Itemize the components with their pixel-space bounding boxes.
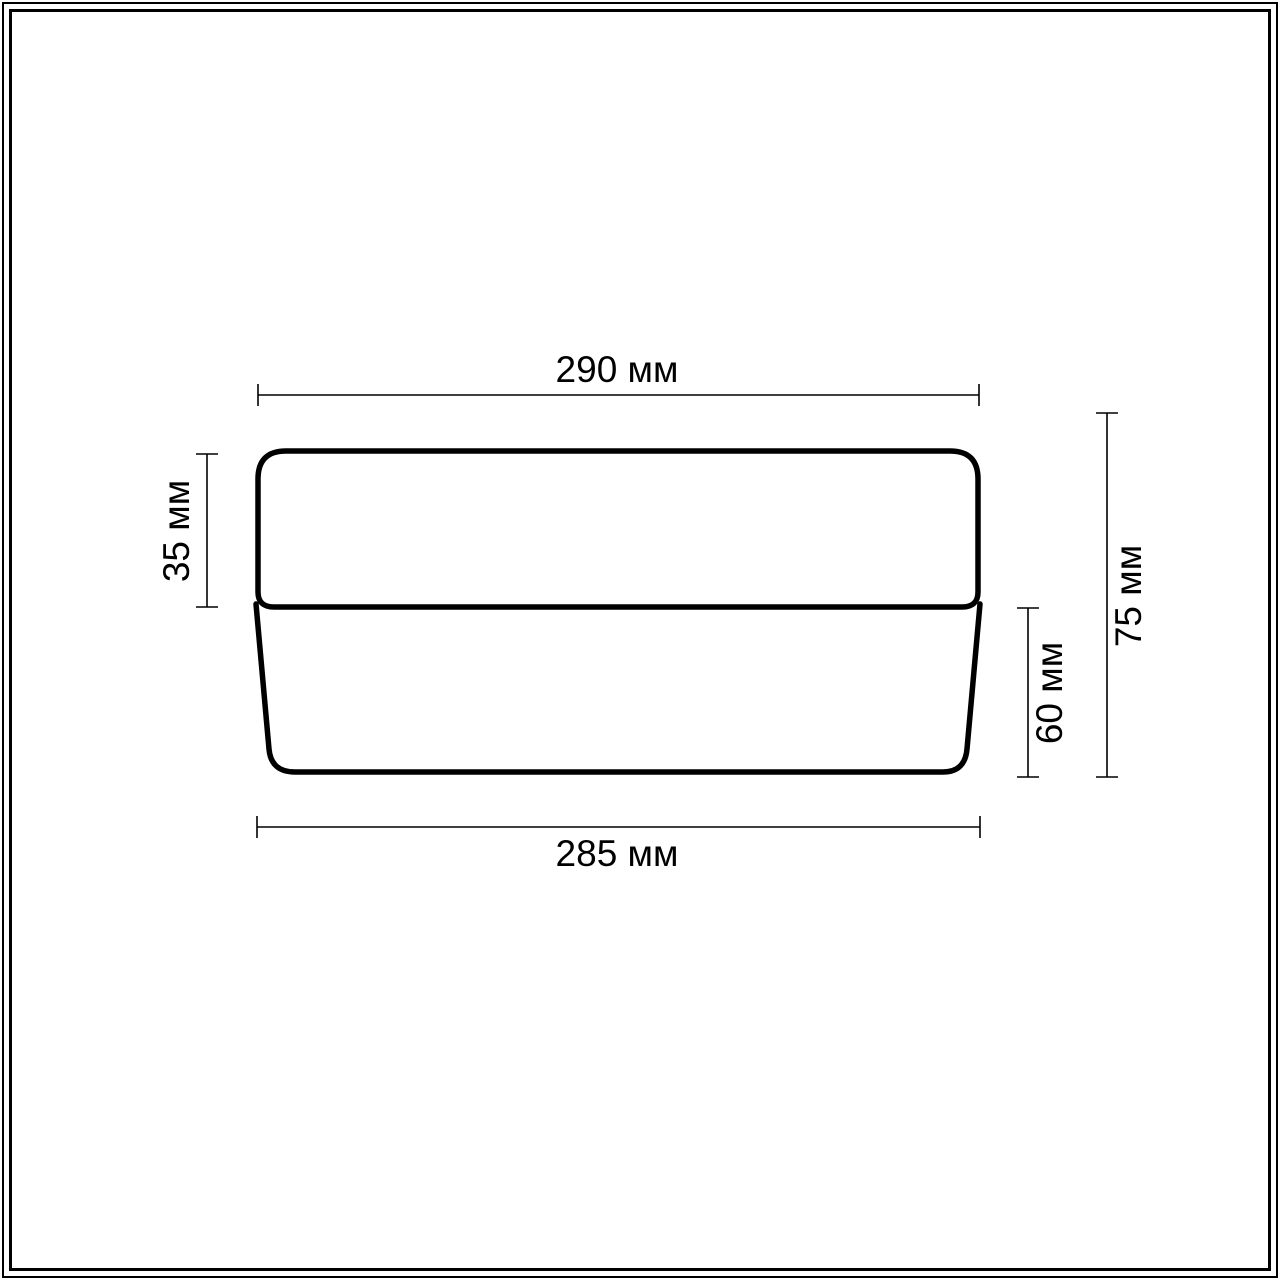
dimension-label-top-width: 290 мм	[556, 349, 679, 390]
drawing-page: 290 мм 285 мм 35 мм 60 мм 75 мм	[0, 0, 1280, 1280]
dimension-label-total-height: 75 мм	[1108, 545, 1149, 647]
fixture-diffuser-outline	[258, 451, 978, 607]
dimension-diagram: 290 мм 285 мм 35 мм 60 мм 75 мм	[0, 0, 1280, 1280]
fixture-base-outline	[256, 604, 980, 772]
dimension-upper-height	[196, 454, 218, 607]
dimension-label-bottom-width: 285 мм	[556, 833, 679, 874]
dimension-label-lower-height: 60 мм	[1029, 642, 1070, 744]
dimension-label-upper-height: 35 мм	[156, 480, 197, 582]
